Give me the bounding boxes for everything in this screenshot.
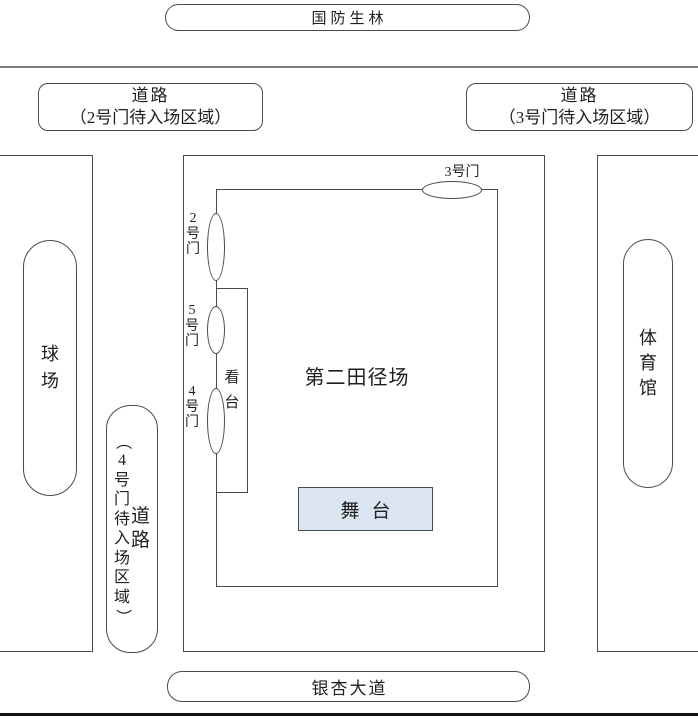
road-gate3-waiting-area: 道路 （3号门待入场区域） bbox=[466, 83, 693, 131]
track-field-label: 第二田径场 bbox=[216, 361, 498, 390]
gate3-label: 3号门 bbox=[430, 161, 494, 181]
road-gate3-line1: 道路 bbox=[561, 85, 599, 107]
ball-field: 球场 bbox=[23, 240, 77, 496]
gymnasium-label: 体育馆 bbox=[639, 326, 657, 401]
road-gate2-waiting-area: 道路 （2号门待入场区域） bbox=[38, 83, 263, 131]
ball-field-label: 球场 bbox=[41, 341, 59, 395]
ginkgo-avenue-label: 银杏大道 bbox=[310, 674, 388, 699]
gate5-label: 5号门 bbox=[183, 303, 201, 350]
road-gate4-main: 道路 bbox=[131, 505, 150, 553]
site-layout-diagram: 国防生林 道路 （2号门待入场区域） 道路 （3号门待入场区域） 球场 （4号门… bbox=[0, 0, 698, 721]
gate4-label: 4号门 bbox=[183, 384, 201, 431]
gate2-label: 2号门 bbox=[184, 211, 202, 258]
stage-label: 舞台 bbox=[328, 496, 402, 523]
top-divider-line bbox=[0, 66, 698, 68]
stage: 舞台 bbox=[298, 487, 433, 531]
ginkgo-avenue: 银杏大道 bbox=[167, 671, 530, 702]
gate3-ellipse bbox=[422, 181, 482, 199]
gymnasium: 体育馆 bbox=[623, 239, 673, 488]
gate5-ellipse bbox=[207, 306, 225, 354]
road-gate3-line2: （3号门待入场区域） bbox=[499, 107, 661, 129]
bottom-divider-line bbox=[0, 713, 698, 716]
gate2-ellipse bbox=[207, 213, 225, 281]
road-gate4-waiting-area: （4号门待入场区域） 道路 bbox=[106, 405, 158, 653]
road-gate2-line2: （2号门待入场区域） bbox=[70, 107, 232, 129]
road-gate2-line1: 道路 bbox=[132, 85, 170, 107]
forest-label: 国防生林 bbox=[307, 7, 387, 28]
road-gate4-paren: （4号门待入场区域） bbox=[114, 432, 130, 627]
gate4-ellipse bbox=[207, 388, 225, 454]
forest-area: 国防生林 bbox=[165, 4, 530, 31]
